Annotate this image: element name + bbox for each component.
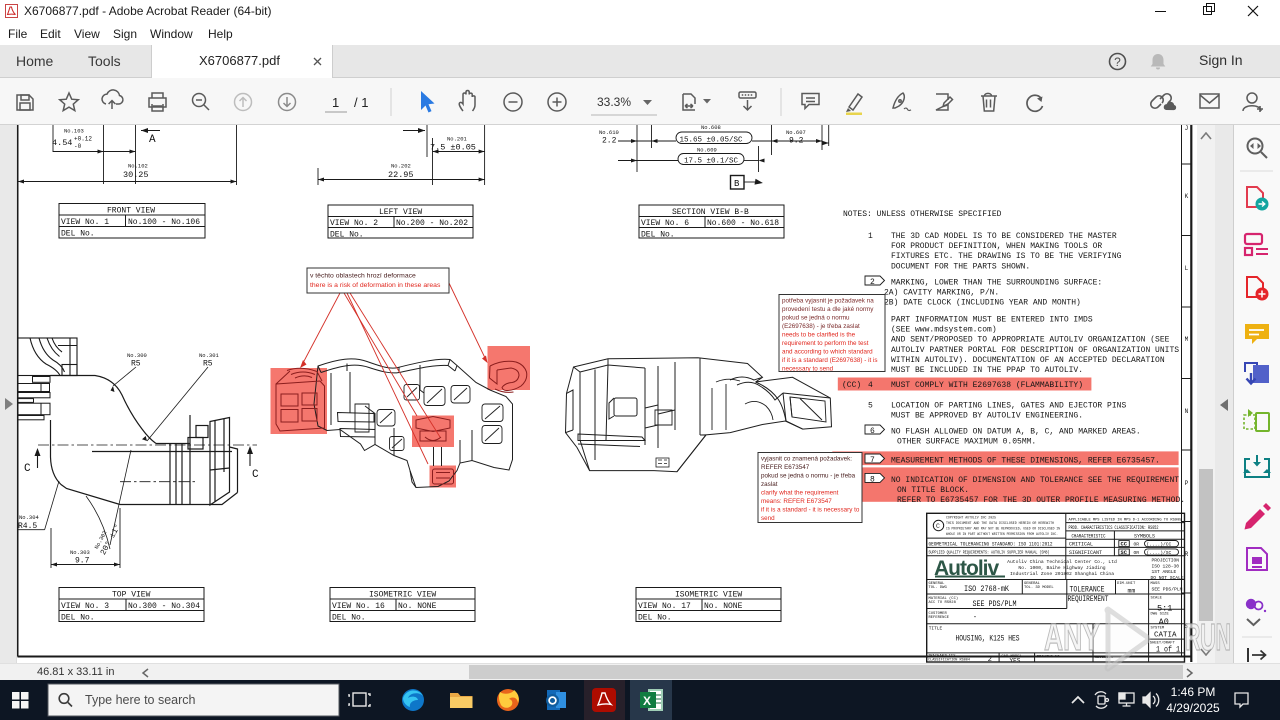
svg-text:No.303: No.303 bbox=[70, 549, 90, 556]
svg-text:?: ? bbox=[1114, 55, 1121, 69]
svg-text:No.200 - No.202: No.200 - No.202 bbox=[396, 219, 468, 228]
svg-text:THE 3D CAD MODEL IS TO BE CONS: THE 3D CAD MODEL IS TO BE CONSIDERED THE… bbox=[891, 232, 1117, 241]
svg-text:2: 2 bbox=[988, 656, 992, 663]
svg-text:TOL. DWG: TOL. DWG bbox=[929, 586, 948, 590]
svg-text:THIS DOCUMENT AND THE DATA DIS: THIS DOCUMENT AND THE DATA DISCLOSED HER… bbox=[946, 522, 1054, 526]
svg-text:DIM.UNIT: DIM.UNIT bbox=[1117, 582, 1136, 586]
svg-text:DEL No.: DEL No. bbox=[638, 614, 672, 623]
svg-text:L: L bbox=[1185, 265, 1189, 272]
svg-text:MASS: MASS bbox=[1151, 582, 1161, 586]
svg-text:C: C bbox=[24, 463, 31, 475]
svg-text:N: N bbox=[1185, 408, 1189, 415]
svg-text:FOR PRODUCT DEFINITION, WHEN M: FOR PRODUCT DEFINITION, WHEN MAKING TOOL… bbox=[891, 242, 1102, 251]
svg-text:FRONT VIEW: FRONT VIEW bbox=[107, 207, 155, 216]
svg-text:MUST BE APPROVED BY AUTOLIV EN: MUST BE APPROVED BY AUTOLIV ENGINEERING. bbox=[891, 412, 1083, 421]
svg-text:ISO 128-30: ISO 128-30 bbox=[1152, 564, 1180, 570]
svg-text:5: 5 bbox=[868, 402, 873, 411]
svg-text:No.201: No.201 bbox=[447, 136, 468, 143]
svg-text:TITLE: TITLE bbox=[929, 626, 943, 632]
svg-text:No.610: No.610 bbox=[599, 129, 619, 136]
svg-text:REQUIREMENT: REQUIREMENT bbox=[1068, 595, 1109, 604]
svg-text:REFER E673547: REFER E673547 bbox=[761, 464, 810, 471]
svg-text:2: 2 bbox=[870, 278, 875, 287]
svg-text:(E2697638) - je třeba zaslat: (E2697638) - je třeba zaslat bbox=[782, 323, 860, 330]
svg-text:No.300: No.300 bbox=[127, 352, 147, 359]
svg-text:AUTOLIV PARTNER PORTAL FOR DES: AUTOLIV PARTNER PORTAL FOR DESCRIPTION O… bbox=[891, 346, 1179, 355]
svg-text:4: 4 bbox=[868, 381, 873, 390]
svg-text:No. 1000, Baihe Highway Jiadin: No. 1000, Baihe Highway Jiading bbox=[1018, 565, 1105, 571]
svg-text:No.607: No.607 bbox=[786, 129, 806, 136]
svg-text:1 of 1: 1 of 1 bbox=[1156, 646, 1180, 655]
svg-text:SUPPLIED QUALITY REQUIREMENTS:: SUPPLIED QUALITY REQUIREMENTS: AUTOLIV S… bbox=[929, 551, 1050, 556]
svg-text:provedení testu a dle jaké nor: provedení testu a dle jaké normy bbox=[782, 306, 874, 313]
svg-text:IS PROPRIETARY AND MAY NOT BE: IS PROPRIETARY AND MAY NOT BE REPRODUCED… bbox=[946, 528, 1060, 532]
svg-text:No.609: No.609 bbox=[697, 147, 717, 154]
svg-text:DEL No.: DEL No. bbox=[61, 614, 95, 623]
svg-text:No. NONE: No. NONE bbox=[398, 602, 437, 611]
svg-text:necessary to send: necessary to send bbox=[782, 366, 834, 373]
svg-text:requirement to perform the tes: requirement to perform the test bbox=[782, 340, 869, 347]
svg-text:ACC TO RS028: ACC TO RS028 bbox=[929, 601, 957, 605]
svg-text:zaslat: zaslat bbox=[761, 481, 778, 488]
svg-text:means: REFER E673547: means: REFER E673547 bbox=[761, 498, 832, 505]
svg-text:8: 8 bbox=[870, 475, 875, 484]
svg-text:ISO 2768-mK: ISO 2768-mK bbox=[964, 585, 1009, 594]
svg-text:TOL. 3D MODEL: TOL. 3D MODEL bbox=[1024, 586, 1054, 590]
svg-text:No.103: No.103 bbox=[64, 128, 84, 135]
svg-text:7.5 ±0.05: 7.5 ±0.05 bbox=[430, 143, 476, 153]
svg-text:ON TITLE BLOCK.: ON TITLE BLOCK. bbox=[897, 486, 969, 495]
svg-text:there is a risk of deformation: there is a risk of deformation in these … bbox=[310, 282, 441, 289]
svg-text:GEOMETRICAL TOLERANCING STANDA: GEOMETRICAL TOLERANCING STANDARD: ISO 11… bbox=[929, 540, 1053, 547]
svg-text:K: K bbox=[1185, 193, 1189, 200]
svg-text:DEL No.: DEL No. bbox=[641, 231, 675, 240]
svg-text:pokud se jedná o normu - je tř: pokud se jedná o normu - je třeba bbox=[761, 473, 856, 480]
svg-text:1ST ANGLE: 1ST ANGLE bbox=[1152, 569, 1177, 575]
svg-text:X: X bbox=[643, 694, 651, 708]
svg-text:COPYRIGHT AUTOLIV INC 2025: COPYRIGHT AUTOLIV INC 2025 bbox=[946, 517, 997, 521]
svg-text:VIEW No. 2: VIEW No. 2 bbox=[330, 219, 378, 228]
svg-text:DRAWING NO: DRAWING NO bbox=[1037, 655, 1061, 659]
svg-text:No.202: No.202 bbox=[391, 163, 411, 170]
svg-text:C: C bbox=[252, 469, 259, 481]
svg-text:PROJECTION: PROJECTION bbox=[1152, 558, 1180, 564]
svg-text:33.3%: 33.3% bbox=[597, 95, 631, 109]
svg-text:v těchto oblastech hrozí defor: v těchto oblastech hrozí deformace bbox=[310, 273, 416, 280]
svg-text:and according to which standar: and according to which standard bbox=[782, 349, 873, 356]
svg-text:B: B bbox=[734, 179, 740, 189]
svg-text:needs to be clarified is the: needs to be clarified is the bbox=[782, 332, 856, 339]
svg-text:ISOMETRIC VIEW: ISOMETRIC VIEW bbox=[675, 591, 742, 600]
svg-text:DEL No.: DEL No. bbox=[330, 231, 364, 240]
svg-text:SEE PDS/PLM: SEE PDS/PLM bbox=[1152, 587, 1183, 593]
svg-text:No.608: No.608 bbox=[701, 125, 721, 131]
svg-text:PROD. CHARACTERISTICS CLASSIFI: PROD. CHARACTERISTICS CLASSIFICATION: RS… bbox=[1069, 525, 1159, 531]
svg-text:NO INDICATION OF DIMENSION AND: NO INDICATION OF DIMENSION AND TOLERANCE… bbox=[891, 476, 1179, 485]
svg-text:2B) DATE CLOCK (INCLUDING YEAR: 2B) DATE CLOCK (INCLUDING YEAR AND MONTH… bbox=[884, 299, 1081, 308]
svg-text:No. NONE: No. NONE bbox=[704, 602, 743, 611]
svg-text:Industrial Zone 201802 Shangha: Industrial Zone 201802 Shanghai China bbox=[1010, 571, 1114, 577]
svg-text:/ 1: / 1 bbox=[354, 95, 368, 110]
svg-text:FIXTURES ETC. THE DRAWING IS T: FIXTURES ETC. THE DRAWING IS TO BE THE V… bbox=[891, 252, 1122, 261]
svg-text:C: C bbox=[936, 523, 940, 530]
svg-text:WITHIN AUTOLIV). DOCUMENTATION: WITHIN AUTOLIV). DOCUMENTATION OF AN ACC… bbox=[891, 356, 1165, 365]
svg-text:MEASUREMENT METHODS OF THESE D: MEASUREMENT METHODS OF THESE DIMENSIONS,… bbox=[891, 457, 1160, 466]
svg-text:SECTION VIEW B-B: SECTION VIEW B-B bbox=[672, 208, 749, 217]
svg-text:M: M bbox=[1185, 336, 1189, 343]
svg-text:MARKING, LOWER THAN THE SURROU: MARKING, LOWER THAN THE SURROUNDING SURF… bbox=[891, 279, 1102, 288]
svg-text:SEE PDS/PLM: SEE PDS/PLM bbox=[973, 599, 1017, 609]
svg-text:pokud se jedná o normu: pokud se jedná o normu bbox=[782, 315, 850, 322]
svg-text:REFERENCE: REFERENCE bbox=[929, 616, 950, 620]
svg-text:ISOMETRIC VIEW: ISOMETRIC VIEW bbox=[369, 591, 436, 600]
svg-text:J: J bbox=[1185, 125, 1189, 132]
svg-text:No.600 - No.618: No.600 - No.618 bbox=[707, 219, 779, 228]
svg-text:NO FLASH ALLOWED ON DATUM A, B: NO FLASH ALLOWED ON DATUM A, B, C, AND M… bbox=[891, 428, 1141, 437]
svg-text:CLASSIFICATION RS004: CLASSIFICATION RS004 bbox=[928, 659, 971, 663]
svg-text:2A) CAVITY MARKING, P/N.: 2A) CAVITY MARKING, P/N. bbox=[884, 289, 999, 298]
svg-text:LEFT VIEW: LEFT VIEW bbox=[379, 208, 422, 217]
svg-text:A0: A0 bbox=[1159, 617, 1169, 627]
svg-text:VIEW No. 1: VIEW No. 1 bbox=[61, 218, 109, 227]
svg-text:OTHER SURFACE MAXIMUM 0.05MM.: OTHER SURFACE MAXIMUM 0.05MM. bbox=[897, 438, 1036, 447]
svg-text:clarify what the requirement: clarify what the requirement bbox=[761, 490, 839, 497]
svg-text:SYMBOLS: SYMBOLS bbox=[1134, 533, 1155, 539]
svg-text:VIEW No. 3: VIEW No. 3 bbox=[61, 602, 109, 611]
svg-text:1: 1 bbox=[332, 95, 339, 110]
svg-text:No.100 - No.106: No.100 - No.106 bbox=[128, 218, 200, 227]
svg-text:22.95: 22.95 bbox=[388, 170, 414, 180]
svg-text:SYSTEM: SYSTEM bbox=[1151, 627, 1165, 631]
svg-text:DEL No.: DEL No. bbox=[61, 230, 95, 239]
svg-text:1:46 PM: 1:46 PM bbox=[1171, 685, 1216, 699]
svg-text:4/29/2025: 4/29/2025 bbox=[1166, 701, 1220, 715]
svg-text:-0: -0 bbox=[74, 143, 82, 150]
svg-text:DWG SIZE: DWG SIZE bbox=[1151, 612, 1170, 616]
svg-text:30.25: 30.25 bbox=[123, 170, 149, 180]
svg-text:WHOLE OR IN PART WITHOUT WRITT: WHOLE OR IN PART WITHOUT WRITTEN PERMISS… bbox=[946, 533, 1058, 537]
svg-text:+0.12: +0.12 bbox=[74, 136, 92, 143]
svg-text:6: 6 bbox=[870, 427, 875, 436]
svg-text:PART INFORMATION MUST BE ENTER: PART INFORMATION MUST BE ENTERED INTO IM… bbox=[891, 316, 1093, 325]
svg-text:7: 7 bbox=[870, 456, 875, 465]
svg-text:VIEW No. 6: VIEW No. 6 bbox=[641, 219, 689, 228]
svg-text:CATIA: CATIA bbox=[1154, 631, 1177, 639]
svg-text:(CC): (CC) bbox=[842, 381, 861, 390]
svg-text:4.54: 4.54 bbox=[52, 138, 72, 148]
svg-text:CHARACTERISTIC: CHARACTERISTIC bbox=[1072, 533, 1106, 539]
svg-text:2.2: 2.2 bbox=[602, 137, 617, 146]
svg-text:CRITICAL: CRITICAL bbox=[1069, 542, 1093, 548]
svg-text:TOLERANCE: TOLERANCE bbox=[1070, 586, 1105, 595]
svg-text:VIEW No. 16: VIEW No. 16 bbox=[332, 602, 385, 611]
svg-text:MUST BE INCLUDED IN THE PPAP T: MUST BE INCLUDED IN THE PPAP TO AUTOLIV. bbox=[891, 366, 1083, 375]
svg-text:-: - bbox=[973, 614, 977, 622]
svg-text:mm: mm bbox=[1128, 588, 1136, 595]
svg-text:DO NOT SCALE: DO NOT SCALE bbox=[1151, 575, 1184, 581]
svg-text:OR: OR bbox=[1134, 542, 1140, 548]
svg-text:NOTES: UNLESS OTHERWISE SPECIF: NOTES: UNLESS OTHERWISE SPECIFIED bbox=[843, 210, 1002, 219]
svg-text:(SEE www.mdsystem.com): (SEE www.mdsystem.com) bbox=[891, 326, 997, 335]
svg-text:17.5 ±0.1/SC: 17.5 ±0.1/SC bbox=[684, 158, 739, 166]
svg-text:P: P bbox=[1185, 480, 1189, 487]
svg-text:APPLICABLE MPS LISTED IN MPS D: APPLICABLE MPS LISTED IN MPS D-1 ACCORDI… bbox=[1069, 519, 1183, 523]
svg-text:LOCATION OF PARTING LINES, GAT: LOCATION OF PARTING LINES, GATES AND EJE… bbox=[891, 402, 1126, 411]
svg-text:OR: OR bbox=[1134, 550, 1140, 556]
svg-text:9.2: 9.2 bbox=[789, 137, 804, 146]
svg-text:1: 1 bbox=[868, 232, 873, 241]
svg-text:REFER TO E6735457 FOR THE 3D O: REFER TO E6735457 FOR THE 3D OUTER PROFI… bbox=[897, 496, 1185, 505]
svg-text:Autoliv China Technical Center: Autoliv China Technical Center Co., Ltd bbox=[1007, 559, 1117, 565]
svg-text:if it is a standard - it is ne: if it is a standard - it is necessary to bbox=[761, 507, 860, 514]
svg-text:No.301: No.301 bbox=[199, 352, 220, 359]
svg-text:MUST COMPLY WITH E2697638 (FLA: MUST COMPLY WITH E2697638 (FLAMMABILITY) bbox=[891, 381, 1083, 390]
svg-text:potřeba vyjasnit je požadavek: potřeba vyjasnit je požadavek na bbox=[782, 298, 874, 305]
svg-text:send: send bbox=[761, 515, 775, 522]
svg-text:DOCUMENT FOR THE PARTS SHOWN.: DOCUMENT FOR THE PARTS SHOWN. bbox=[891, 262, 1030, 271]
svg-text:SCALE: SCALE bbox=[1151, 597, 1163, 601]
svg-text:HOUSING, K125 HES: HOUSING, K125 HES bbox=[956, 634, 1020, 644]
svg-text:15.65 ±0.05/SC: 15.65 ±0.05/SC bbox=[680, 137, 744, 145]
svg-text:No.304: No.304 bbox=[19, 514, 40, 521]
svg-text:TOP VIEW: TOP VIEW bbox=[112, 591, 151, 600]
svg-text:SIGNIFICANT: SIGNIFICANT bbox=[1069, 550, 1102, 556]
svg-text:AND SENT/PROPOSED TO APPROPRIA: AND SENT/PROPOSED TO APPROPRIATE AUTOLIV… bbox=[891, 336, 1170, 345]
svg-text:REVISION: REVISION bbox=[1095, 656, 1113, 660]
svg-text:DEL No.: DEL No. bbox=[332, 614, 366, 623]
svg-text:if it is a standard (E2697638): if it is a standard (E2697638) - it is bbox=[782, 357, 878, 364]
svg-text:No.300 - No.304: No.300 - No.304 bbox=[128, 602, 200, 611]
svg-text:vyjasnit co znamená požadavek:: vyjasnit co znamená požadavek: bbox=[761, 456, 852, 463]
svg-text:A: A bbox=[149, 134, 156, 146]
svg-text:VIEW No. 17: VIEW No. 17 bbox=[638, 602, 691, 611]
svg-text:No.102: No.102 bbox=[128, 163, 148, 170]
svg-text:Type here to search: Type here to search bbox=[85, 693, 196, 707]
